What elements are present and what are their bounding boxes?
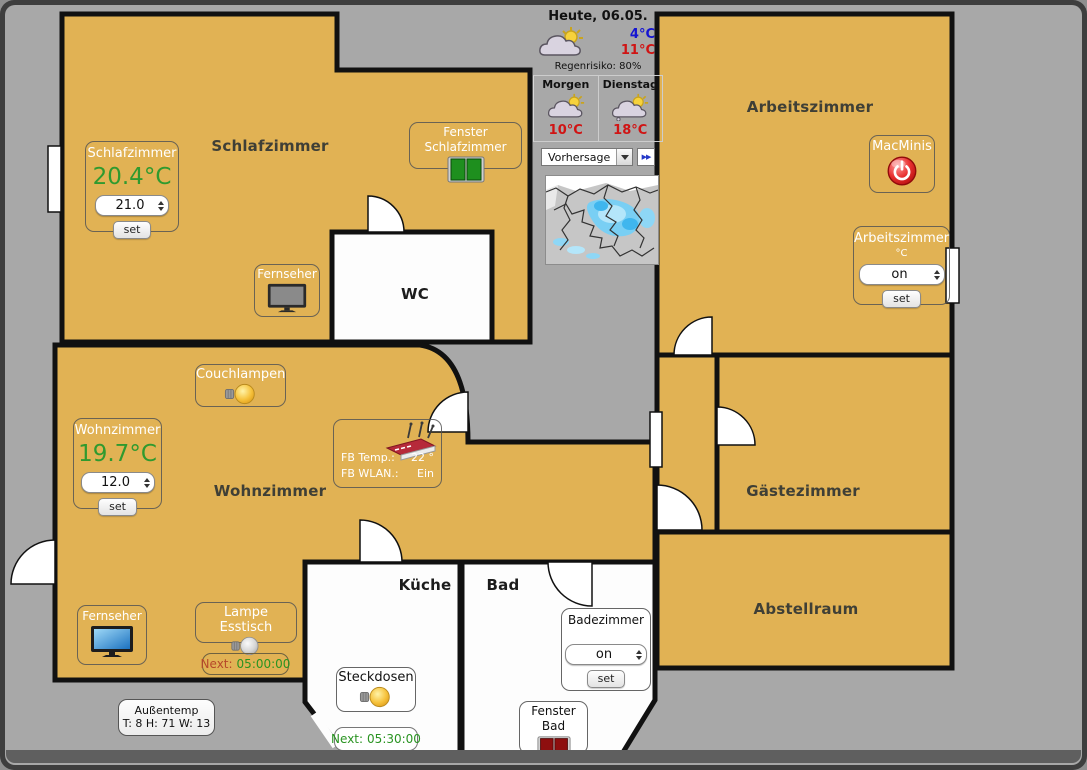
next-label: Next: [331,732,363,746]
set-button[interactable]: set [98,498,137,516]
forecast-day-2-label: Dienstag [599,78,663,91]
mode-select[interactable]: on [859,264,945,285]
panel-label: Fernseher [255,265,319,282]
current-temperature: 20.4°C [86,164,178,190]
stepper-arrows-icon[interactable] [158,201,164,211]
fernseher-schlafzimmer-panel: Fernseher [254,264,320,317]
forecast-day-2: Dienstag 18°C [599,76,664,141]
fb-wlan-value: Ein [417,466,434,482]
set-button[interactable]: set [882,290,921,308]
couchlampen-panel: Couchlampen [195,364,286,407]
panel-label: Lampe Esstisch [196,603,296,635]
fb-temp-value: 22 ° [411,450,434,466]
chevron-down-icon[interactable] [616,149,632,165]
cloud-sun-icon [546,93,586,121]
stepper-arrows-icon[interactable] [636,650,642,660]
cloud-sun-drizzle-icon [610,93,650,121]
room-label-arbeitszimmer: Arbeitszimmer [735,98,885,116]
panel-title: Badezimmer [562,609,650,628]
forecast-forward-button[interactable]: ▶▶ [637,148,655,166]
today-max-temp: 11°C [621,43,655,59]
arbeitszimmer-control-panel: Arbeitszimmer °C on set [853,226,950,305]
stepper-arrows-icon[interactable] [144,478,150,488]
app-window: Schlafzimmer WC Arbeitszimmer Wohnzimmer… [0,0,1087,770]
forecast-dropdown[interactable]: Vorhersage [541,148,633,166]
fenster-schlafzimmer-panel: Fenster Schlafzimmer [409,122,522,169]
next-time: 05:30:00 [367,732,421,746]
current-temperature: 19.7°C [74,441,161,467]
weather-date: Heute, 06.05. [533,9,663,24]
room-label-bad: Bad [478,576,528,594]
tv-on-icon[interactable] [89,625,135,659]
tv-icon[interactable] [266,283,308,314]
panel-title: Schlafzimmer [86,142,178,161]
steckdosen-panel: Steckdosen [336,667,416,712]
forecast-day-1: Morgen 10°C [534,76,599,141]
fenster-bad-panel: Fenster Bad [519,701,588,754]
room-label-kueche: Küche [390,576,460,594]
today-min-temp: 4°C [621,27,655,43]
forecast-day-1-label: Morgen [534,78,598,91]
steckdosen-next-timer: Next: 05:30:00 [334,727,418,751]
panel-label: Fenster Bad [520,702,587,734]
set-button[interactable]: set [587,670,626,688]
weather-panel: Heute, 06.05. 4°C 11°C Regenrisiko: 80% … [533,9,663,166]
radar-map-image [545,175,659,265]
wohnzimmer-thermostat-panel: Wohnzimmer 19.7°C 12.0 set [73,418,162,509]
aussentemp-title: Außentemp [119,700,214,717]
power-button-icon[interactable] [886,155,918,187]
setpoint-stepper[interactable]: 21.0 [95,195,169,216]
panel-label: Fenster Schlafzimmer [410,123,521,155]
badezimmer-control-panel: Badezimmer on set [561,608,651,691]
floorplan-canvas: Schlafzimmer WC Arbeitszimmer Wohnzimmer… [5,5,1082,765]
room-label-schlafzimmer: Schlafzimmer [200,137,340,155]
stepper-arrows-icon[interactable] [934,270,940,280]
panel-label: Steckdosen [337,668,415,685]
next-time: 05:00:00 [237,657,291,671]
setpoint-value: 21.0 [102,198,158,213]
aussentemp-panel: Außentemp T: 8 H: 71 W: 13 [118,699,215,736]
bulb-on-icon[interactable] [356,686,396,708]
panel-label: Couchlampen [196,365,285,382]
panel-label: Fernseher [78,606,146,624]
fritzbox-panel: FB Temp.: 22 ° FB WLAN.: Ein [333,419,442,488]
fb-wlan-label: FB WLAN.: [341,466,399,482]
forecast-dropdown-value: Vorhersage [548,151,610,164]
setpoint-value: 12.0 [88,475,144,490]
mode-value: on [866,267,934,282]
mode-value: on [572,647,636,662]
lampe-esstisch-next-timer: Next: 05:00:00 [202,653,289,675]
set-button[interactable]: set [113,221,152,239]
rain-risk: Regenrisiko: 80% [533,61,663,72]
next-label: Next: [201,657,233,671]
lampe-esstisch-panel: Lampe Esstisch [195,602,297,643]
room-label-abstellraum: Abstellraum [736,600,876,618]
aussentemp-values: T: 8 H: 71 W: 13 [119,717,214,730]
room-label-gaestezimmer: Gästezimmer [733,482,873,500]
unit-label: °C [854,248,949,259]
mode-select[interactable]: on [565,644,647,665]
panel-title: Arbeitszimmer [854,227,949,246]
fb-temp-label: FB Temp.: [341,450,395,466]
fernseher-wohnzimmer-panel: Fernseher [77,605,147,665]
forecast-day-2-temp: 18°C [599,123,663,138]
window-closed-icon[interactable] [447,156,485,183]
window-bottom-bar [6,750,1081,763]
panel-title: Wohnzimmer [74,419,161,438]
room-label-wohnzimmer: Wohnzimmer [200,482,340,500]
forecast-day-1-temp: 10°C [534,123,598,138]
cloud-sun-icon [537,26,585,60]
panel-label: MacMinis [870,136,934,154]
room-label-wc: WC [390,285,440,303]
bulb-on-icon[interactable] [221,383,261,405]
setpoint-stepper[interactable]: 12.0 [81,472,155,493]
wall-window-schlafzimmer [48,146,61,212]
schlafzimmer-thermostat-panel: Schlafzimmer 20.4°C 21.0 set [85,141,179,232]
door-arc-west [11,540,55,584]
wall-window-flur [650,412,662,467]
forecast-table: Morgen 10°C Dienstag 18°C [533,75,663,142]
macminis-panel: MacMinis [869,135,935,193]
